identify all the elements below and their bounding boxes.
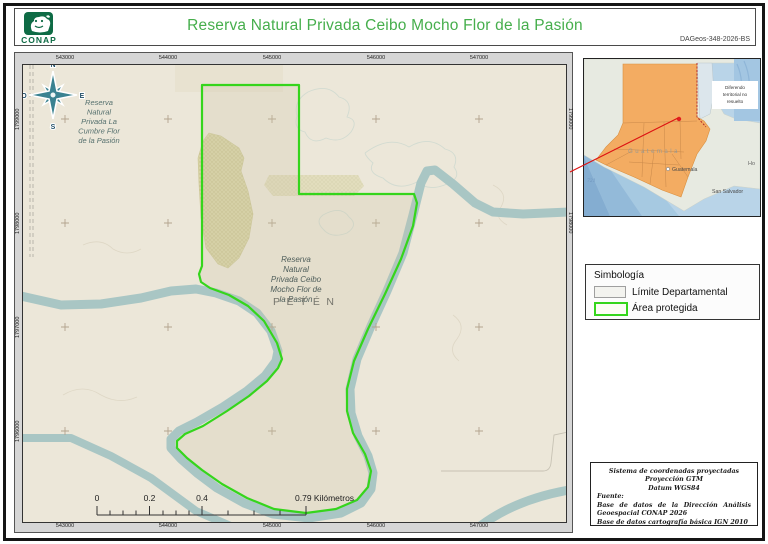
- main-map-frame: 543000 544000 545000 546000 547000 54300…: [14, 52, 573, 533]
- compass-e-label: E: [80, 93, 85, 100]
- legend-item-label: Límite Departamental: [632, 287, 728, 298]
- source-line: Base de datos de la Dirección Análisis G…: [597, 502, 751, 519]
- map-drawing: N E S O Reserva Natural Privada La Cumbr…: [23, 65, 566, 522]
- source-title: Fuente:: [597, 493, 751, 501]
- departmental-limit-swatch: [594, 286, 626, 298]
- map-document-page: CONAP Reserva Natural Privada Ceibo Moch…: [0, 0, 768, 544]
- scale-label-end: 0.79 Kilómetros: [295, 493, 354, 503]
- inset-locator-map[interactable]: Diferendo territorial no resuelto Guatem…: [583, 58, 761, 217]
- grid-label-x: 543000: [43, 55, 87, 61]
- country-label: Guatemala: [628, 149, 680, 155]
- svg-text:territorial no: territorial no: [723, 92, 748, 97]
- coord-system-line: Sistema de coordenadas proyectadas: [597, 468, 751, 476]
- svg-text:Reserva: Reserva: [281, 255, 311, 264]
- datum-line: Datum WGS84: [597, 485, 751, 493]
- svg-text:Diferendo: Diferendo: [725, 85, 745, 90]
- svg-text:resuelto: resuelto: [727, 99, 744, 104]
- grid-label-x: 547000: [457, 55, 501, 61]
- scale-label-04: 0.4: [196, 493, 208, 503]
- scale-label-0: 0: [95, 493, 100, 503]
- svg-text:Cumbre Flor: Cumbre Flor: [78, 127, 120, 136]
- header: CONAP Reserva Natural Privada Ceibo Moch…: [14, 8, 756, 46]
- svg-text:Mocho Flor de: Mocho Flor de: [270, 285, 322, 294]
- projection-line: Proyección GTM: [597, 476, 751, 484]
- svg-text:Privada Ceibo: Privada Ceibo: [271, 275, 322, 284]
- compass-s-label: S: [51, 124, 56, 131]
- protected-area-swatch: [594, 302, 628, 316]
- page-title: Reserva Natural Privada Ceibo Mocho Flor…: [75, 17, 695, 35]
- svg-text:Natural: Natural: [283, 265, 309, 274]
- compass-o-label: O: [23, 93, 27, 100]
- conap-logo-text: CONAP: [19, 35, 59, 45]
- capital-city-dot: [666, 167, 669, 170]
- grid-label-x: 544000: [146, 55, 190, 61]
- credits-box: Sistema de coordenadas proyectadas Proye…: [590, 462, 758, 526]
- document-id: DAGeos-348-2026-BS: [680, 36, 750, 43]
- location-dot: [677, 117, 681, 121]
- scale-label-02: 0.2: [144, 493, 156, 503]
- svg-text:Reserva: Reserva: [85, 98, 113, 107]
- grid-label-x: 545000: [250, 55, 294, 61]
- legend-title: Simbología: [594, 270, 644, 281]
- legend-item-protected-area[interactable]: Área protegida: [586, 302, 759, 316]
- legend-item-departmental-limit[interactable]: Límite Departamental: [586, 286, 759, 300]
- grid-label-x: 546000: [354, 55, 398, 61]
- compass-n-label: N: [50, 65, 55, 69]
- svg-text:Natural: Natural: [87, 108, 112, 117]
- conap-logo-icon: [24, 12, 53, 35]
- department-label: PETÉN: [273, 295, 341, 308]
- legend: Simbología Límite Departamental Área pro…: [585, 264, 760, 320]
- capital-city-label: Guatemala: [672, 167, 697, 173]
- source-line: Base de datos cartografía básica IGN 201…: [597, 519, 751, 527]
- svg-text:de la Pasión: de la Pasión: [78, 136, 119, 145]
- svg-text:Privada La: Privada La: [81, 117, 117, 126]
- honduras-label: Ho: [748, 161, 755, 167]
- legend-item-label: Área protegida: [632, 303, 698, 314]
- map-canvas[interactable]: N E S O Reserva Natural Privada La Cumbr…: [22, 64, 567, 523]
- san-salvador-label: San Salvador: [712, 189, 743, 195]
- depth-label: 721: [587, 178, 596, 184]
